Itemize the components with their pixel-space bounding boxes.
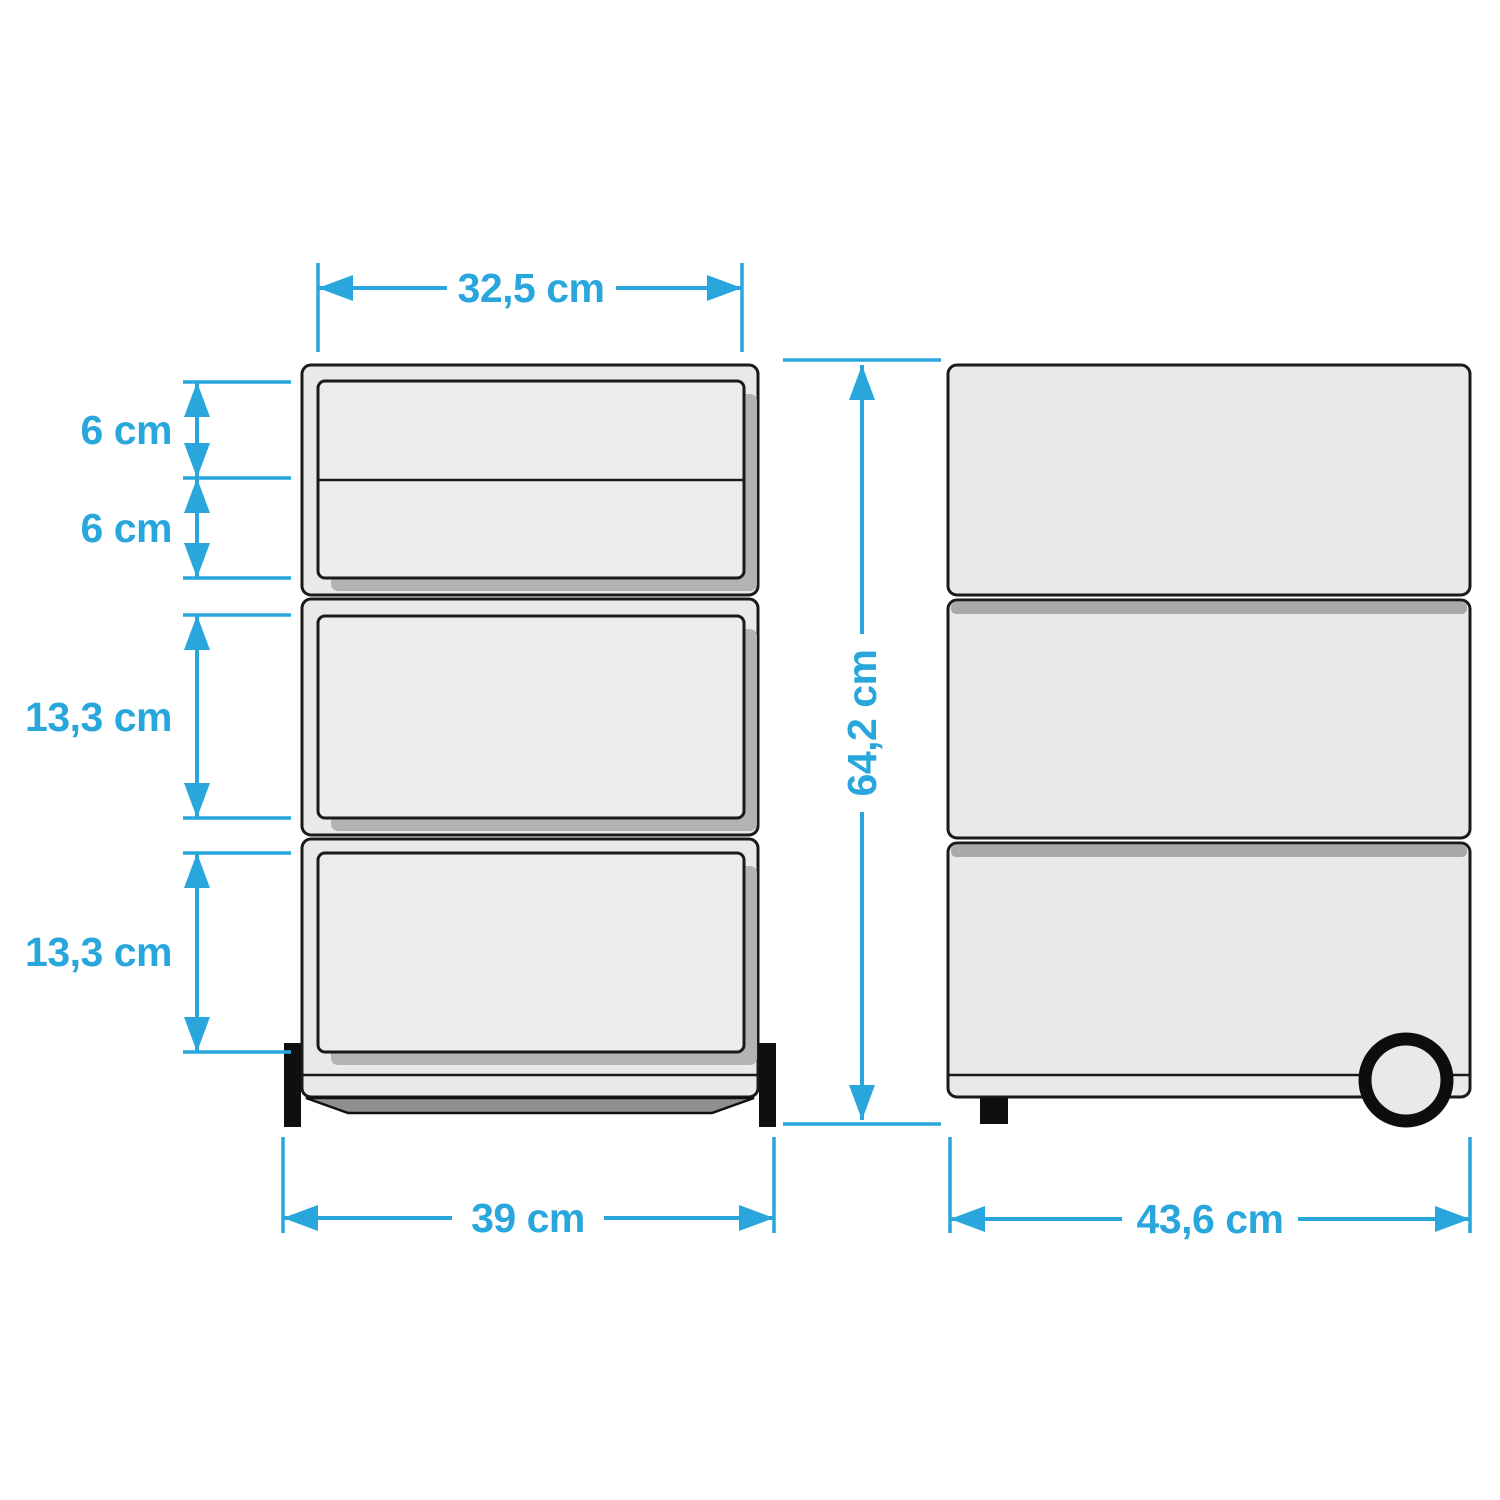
side-panel-2-gap-strip xyxy=(951,602,1467,614)
side-panel-3-gap-strip xyxy=(951,845,1467,857)
dim-label-inner-width: 32,5 cm xyxy=(458,265,605,311)
dim-label-drawer-1: 6 cm xyxy=(81,407,172,453)
dim-depth: 43,6 cm xyxy=(950,1137,1470,1242)
dimension-diagram: 32,5 cm 6 cm 6 cm 13,3 cm 13,3 cm 39 cm xyxy=(0,0,1500,1500)
side-view xyxy=(948,365,1470,1124)
dim-inner-width: 32,5 cm xyxy=(318,263,742,352)
front-drawer-panel-3 xyxy=(318,853,744,1052)
dim-label-depth: 43,6 cm xyxy=(1137,1196,1284,1242)
dim-label-total-height: 64,2 cm xyxy=(839,650,885,797)
dim-drawer-1: 6 cm xyxy=(81,382,291,478)
side-panel-1 xyxy=(948,365,1470,595)
side-panel-2 xyxy=(948,600,1470,838)
dim-label-drawer-3: 13,3 cm xyxy=(25,694,172,740)
dim-drawer-3: 13,3 cm xyxy=(25,615,291,818)
dim-label-drawer-4: 13,3 cm xyxy=(25,929,172,975)
front-left-foot xyxy=(284,1043,301,1127)
dim-total-height: 64,2 cm xyxy=(783,360,941,1124)
side-front-foot xyxy=(980,1098,1008,1124)
dim-drawer-4: 13,3 cm xyxy=(25,853,291,1052)
dim-outer-width: 39 cm xyxy=(283,1137,774,1241)
side-wheel xyxy=(1365,1039,1447,1121)
front-view xyxy=(284,365,776,1127)
front-right-foot xyxy=(759,1043,776,1127)
dim-drawer-2: 6 cm xyxy=(81,478,291,578)
front-drawer-panel-2 xyxy=(318,616,744,818)
dim-label-drawer-2: 6 cm xyxy=(81,505,172,551)
dim-label-outer-width: 39 cm xyxy=(471,1195,585,1241)
front-plinth-shadow xyxy=(306,1098,754,1113)
